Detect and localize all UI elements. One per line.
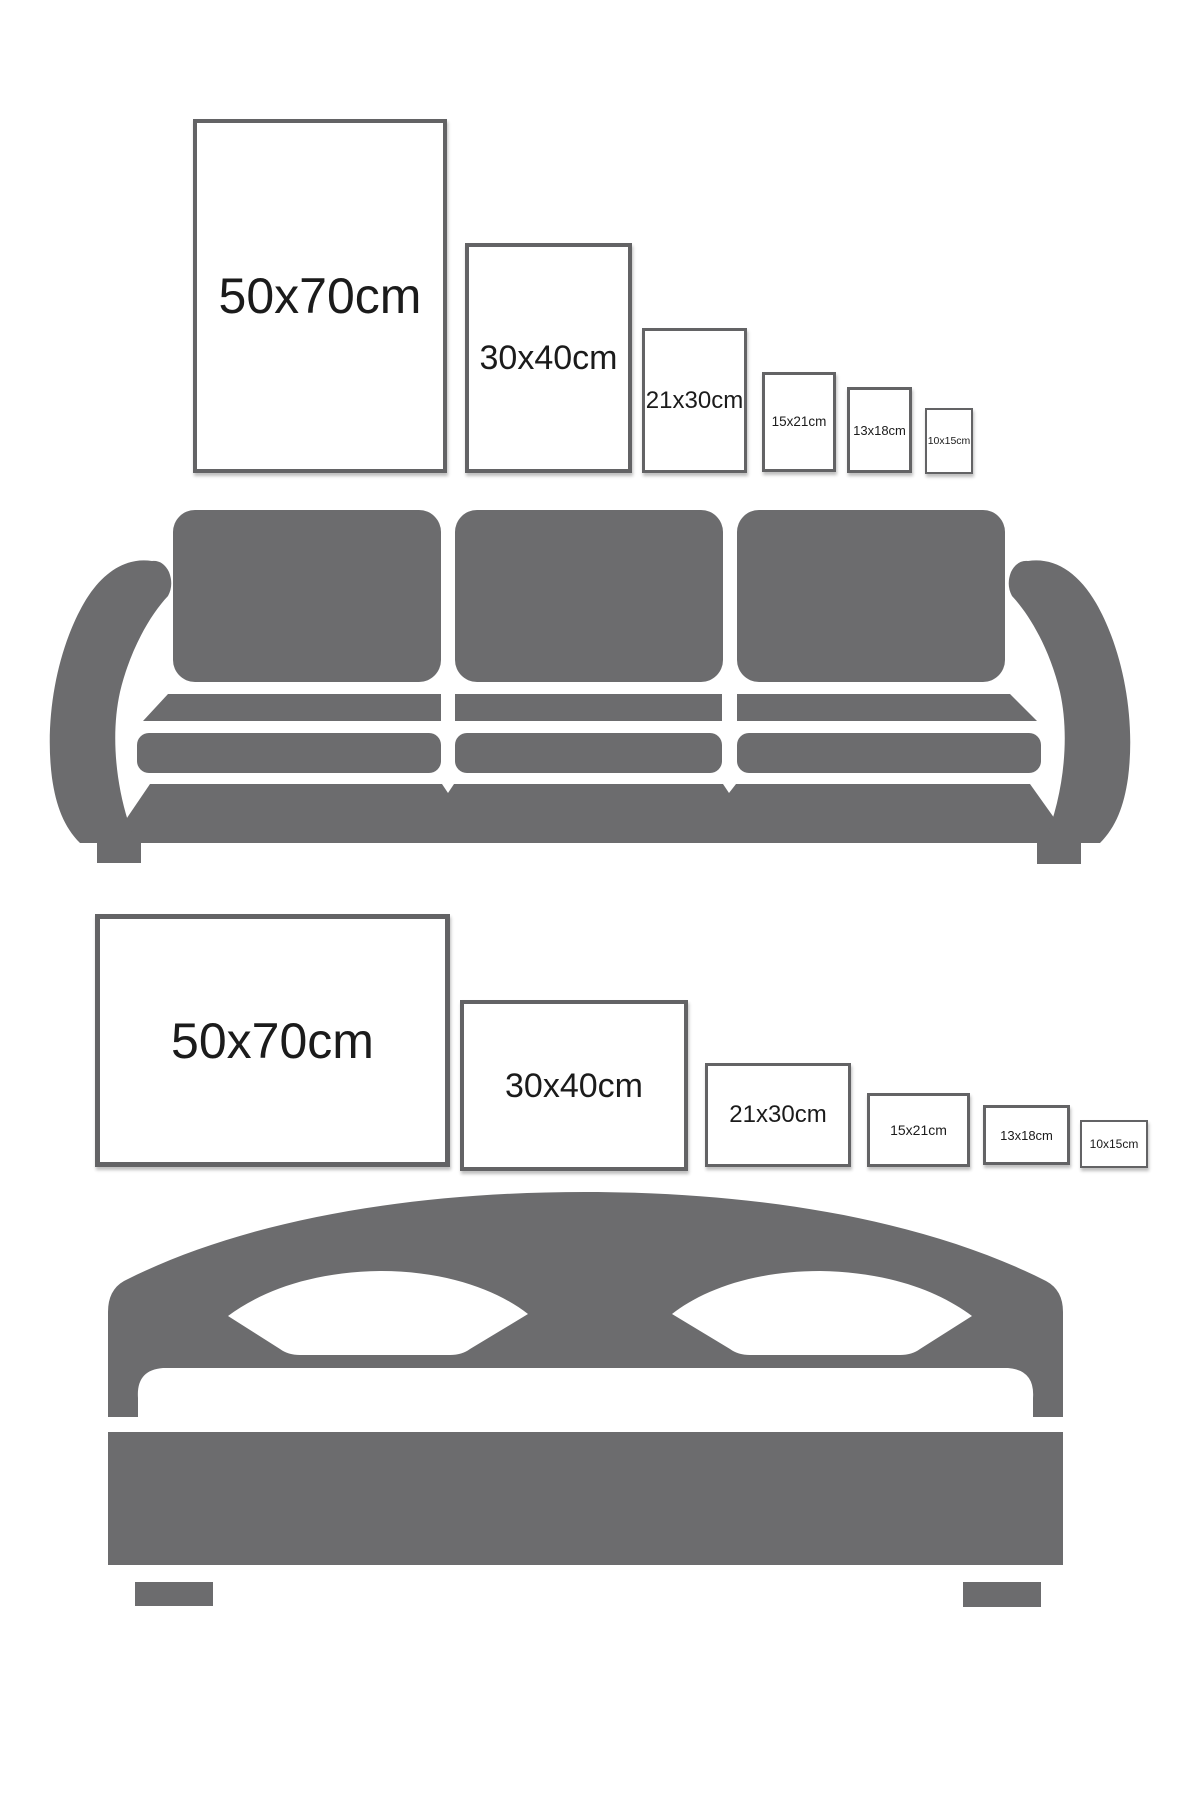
frame-landscape-15x21: 15x21cm bbox=[867, 1093, 970, 1167]
sofa-base bbox=[110, 784, 1072, 843]
frame-landscape-30x40: 30x40cm bbox=[460, 1000, 688, 1171]
sofa-seat-cushion bbox=[137, 733, 441, 773]
size-label: 15x21cm bbox=[772, 415, 827, 429]
size-guide-page: 50x70cm 30x40cm 21x30cm 15x21cm 13x18cm … bbox=[0, 0, 1200, 1800]
frame-portrait-15x21: 15x21cm bbox=[762, 372, 836, 472]
size-label: 30x40cm bbox=[505, 1069, 643, 1103]
sofa-seat-cushion bbox=[455, 733, 722, 773]
sofa-foot bbox=[97, 843, 141, 863]
sofa-deck bbox=[455, 694, 722, 721]
bed-foot bbox=[963, 1582, 1041, 1607]
frame-portrait-50x70: 50x70cm bbox=[193, 119, 447, 473]
bed-foot bbox=[135, 1582, 213, 1606]
sofa-back-cushion bbox=[455, 510, 723, 682]
size-label: 30x40cm bbox=[480, 341, 618, 375]
frame-landscape-10x15: 10x15cm bbox=[1080, 1120, 1148, 1168]
frame-portrait-10x15: 10x15cm bbox=[925, 408, 973, 474]
size-label: 10x15cm bbox=[1090, 1138, 1139, 1150]
size-label: 15x21cm bbox=[890, 1123, 947, 1137]
size-label: 13x18cm bbox=[1000, 1129, 1053, 1142]
size-label: 50x70cm bbox=[171, 1016, 374, 1066]
frame-portrait-30x40: 30x40cm bbox=[465, 243, 632, 473]
sofa-icon bbox=[50, 510, 1130, 864]
size-label: 50x70cm bbox=[219, 271, 422, 321]
size-label: 13x18cm bbox=[853, 424, 906, 437]
frame-landscape-13x18: 13x18cm bbox=[983, 1105, 1070, 1165]
sofa-seat-cushion bbox=[737, 733, 1041, 773]
frame-portrait-21x30: 21x30cm bbox=[642, 328, 747, 473]
bed-base bbox=[108, 1432, 1063, 1565]
frame-landscape-50x70: 50x70cm bbox=[95, 914, 450, 1167]
sofa-deck bbox=[737, 694, 1037, 721]
frame-portrait-13x18: 13x18cm bbox=[847, 387, 912, 473]
size-label: 21x30cm bbox=[646, 389, 743, 413]
sofa-back-cushion bbox=[737, 510, 1005, 682]
sofa-back-cushion bbox=[173, 510, 441, 682]
size-label: 10x15cm bbox=[928, 436, 971, 447]
sofa-deck bbox=[143, 694, 441, 721]
frame-landscape-21x30: 21x30cm bbox=[705, 1063, 851, 1167]
size-label: 21x30cm bbox=[729, 1103, 826, 1127]
sofa-foot bbox=[1037, 843, 1081, 864]
bed-icon bbox=[108, 1192, 1063, 1607]
